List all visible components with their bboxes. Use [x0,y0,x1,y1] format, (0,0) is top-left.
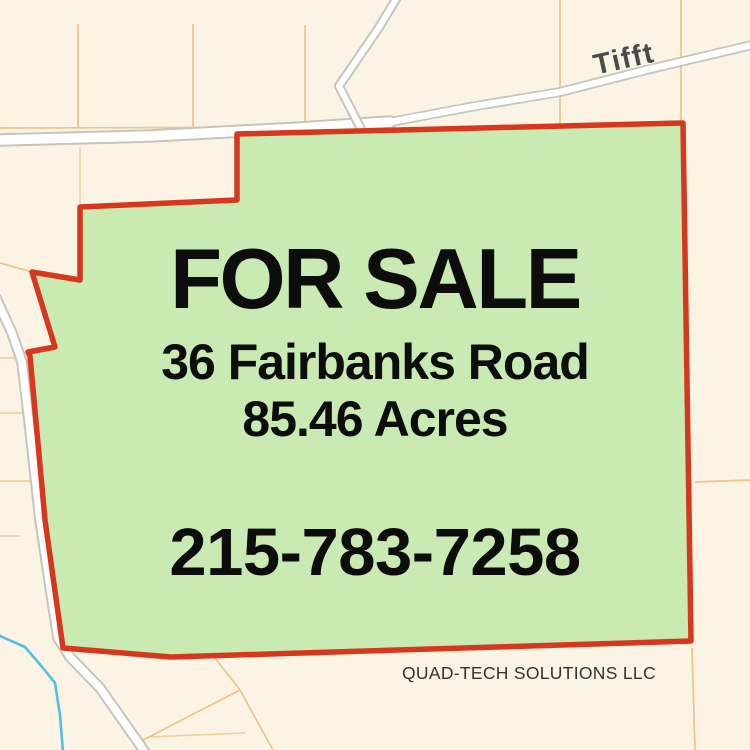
parcel-line [215,658,273,750]
parcel-line [148,733,245,737]
for-sale-headline: FOR SALE [0,237,750,322]
property-address: 36 Fairbanks Road [0,337,750,387]
parcel-line [692,648,695,750]
map-canvas[interactable]: Tifft FOR SALE 36 Fairbanks Road 85.46 A… [0,0,750,750]
parcel-line [143,690,240,750]
company-name: QUAD-TECH SOLUTIONS LLC [402,665,656,683]
contact-phone: 215-783-7258 [0,519,750,586]
parcel-line [695,480,750,482]
stream [0,636,63,750]
property-acreage: 85.46 Acres [0,394,750,444]
road-branch [339,0,398,127]
road-surface [385,45,750,123]
